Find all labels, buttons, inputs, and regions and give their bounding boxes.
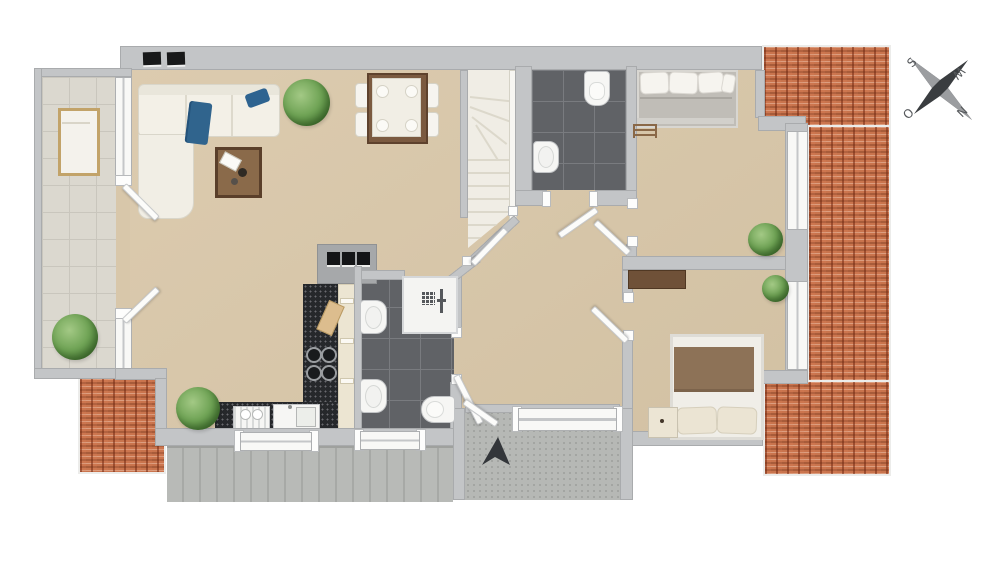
cabinet-handle bbox=[340, 298, 354, 304]
cooktop-burner bbox=[306, 365, 322, 381]
bed-blanket-fold bbox=[640, 97, 732, 99]
cabinet-handle bbox=[340, 378, 354, 384]
toilet-seat-line bbox=[426, 401, 444, 418]
wall-balcony-left bbox=[34, 68, 42, 378]
washbasin-bowl bbox=[365, 385, 382, 408]
potted-plant-bedroom-top bbox=[748, 223, 783, 256]
kitchen-vent-hatch bbox=[357, 252, 370, 265]
washbasin-bowl bbox=[538, 146, 554, 168]
dishwasher-dish bbox=[240, 409, 251, 420]
kitchen-sink-basin bbox=[296, 407, 316, 427]
window-south-bathroom bbox=[360, 431, 420, 450]
lounger-headrest-line bbox=[62, 122, 90, 124]
shower-valve-handle bbox=[437, 299, 446, 302]
compass-label-o: O bbox=[900, 106, 917, 123]
window-terrace-door bbox=[518, 408, 617, 431]
roof-tiles-right-bottom bbox=[763, 380, 891, 476]
coffee-table-cup bbox=[231, 178, 238, 185]
window-east-lower bbox=[787, 281, 808, 370]
potted-plant-balcony bbox=[52, 314, 98, 360]
bed-blanket-brown bbox=[674, 347, 754, 392]
bed-pillow bbox=[640, 72, 670, 95]
door-post bbox=[627, 236, 638, 247]
bed-pillow bbox=[669, 72, 699, 95]
wall-top-band bbox=[120, 46, 762, 70]
wall-bathroom-top bbox=[358, 270, 405, 280]
wall-stair-left bbox=[460, 70, 468, 218]
wall-stair-wc bbox=[515, 66, 532, 206]
door-post bbox=[508, 206, 518, 216]
door-post bbox=[589, 191, 598, 207]
shower-head bbox=[421, 291, 435, 305]
kitchen-vent-hatch bbox=[327, 252, 340, 265]
roof-tiles-left bbox=[78, 377, 166, 474]
wall-bedroom1-east bbox=[755, 70, 765, 118]
shower bbox=[402, 276, 458, 334]
kitchen-faucet bbox=[288, 405, 292, 409]
cooktop-burner bbox=[321, 347, 337, 363]
wall-terrace-left bbox=[453, 408, 465, 500]
kitchen-vent-hatch bbox=[342, 252, 355, 265]
door-post bbox=[627, 198, 638, 209]
washbasin-bowl bbox=[365, 306, 382, 329]
balcony-glazing-upper bbox=[115, 77, 132, 184]
plate bbox=[376, 119, 389, 132]
wall-balcony-top bbox=[34, 68, 132, 77]
wall-room-divider bbox=[622, 256, 788, 270]
cooktop-burner bbox=[306, 347, 322, 363]
potted-plant-kitchen-corner bbox=[176, 387, 220, 430]
nightstand-knob bbox=[660, 419, 664, 423]
roof-tiles-right-middle bbox=[807, 125, 891, 384]
plate bbox=[405, 119, 418, 132]
potted-plant-living bbox=[283, 79, 330, 126]
coffee-table-bowl bbox=[238, 168, 247, 177]
sideboard bbox=[628, 270, 686, 289]
skylight bbox=[143, 52, 161, 66]
window-east-upper bbox=[787, 131, 808, 230]
skylight bbox=[167, 52, 185, 66]
plate bbox=[376, 85, 389, 98]
wall-radiator bbox=[633, 124, 657, 138]
balcony-glazing-lower bbox=[115, 316, 132, 370]
potted-plant-bedroom-bottom bbox=[762, 275, 789, 302]
lounger bbox=[58, 108, 100, 176]
door-post bbox=[542, 191, 551, 207]
cabinet-handle bbox=[340, 338, 354, 344]
window-south-kitchen bbox=[240, 432, 312, 451]
toilet-seat-line bbox=[589, 82, 605, 100]
entrance-arrow bbox=[480, 437, 510, 467]
cooktop-burner bbox=[321, 365, 337, 381]
wall-corner-sw-v bbox=[155, 378, 167, 430]
compass-rose: S W O N bbox=[898, 46, 986, 134]
bed-pillow bbox=[677, 406, 718, 434]
balcony-door-threshold bbox=[116, 182, 130, 316]
floor-plan-canvas: S W O N bbox=[0, 0, 1000, 562]
plate bbox=[405, 85, 418, 98]
lower-roof-ribbed bbox=[167, 446, 453, 502]
bed-pillow bbox=[717, 406, 758, 434]
door-post bbox=[623, 292, 634, 303]
dishwasher-dish bbox=[252, 409, 263, 420]
